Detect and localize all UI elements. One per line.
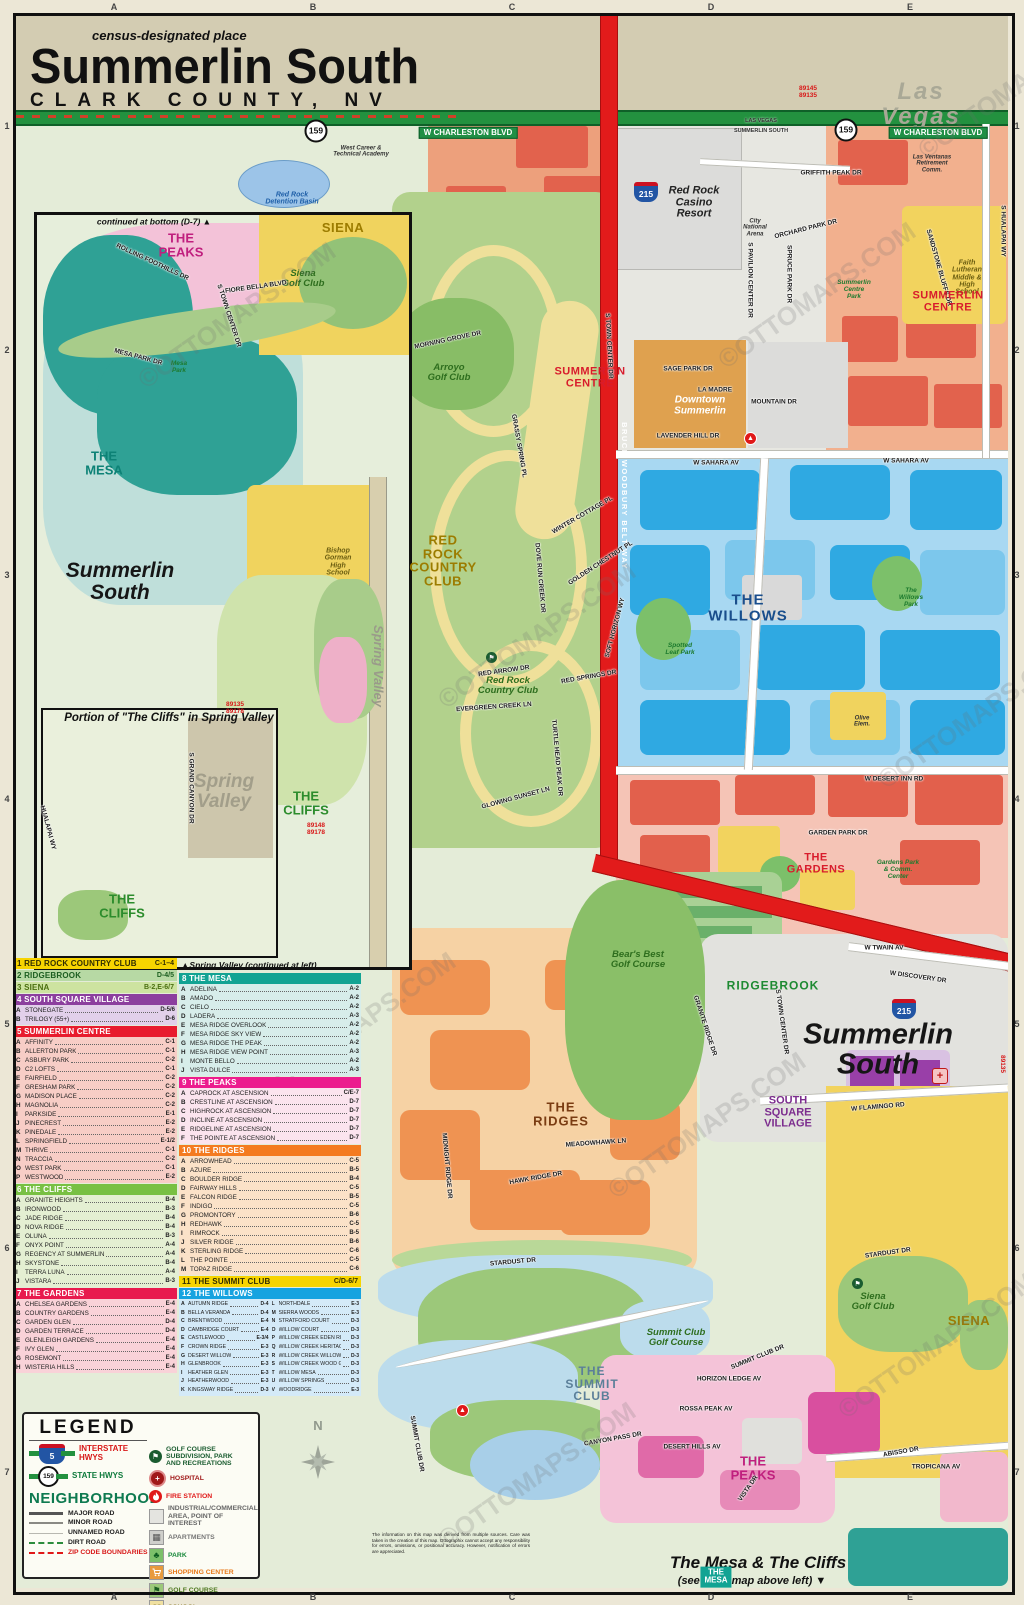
- index-item-mesa-ridge-overlook: EMESA RIDGE OVERLOOKA-2: [181, 1021, 359, 1030]
- index-item-letter: D: [181, 1012, 190, 1021]
- region-pink-blob: [319, 637, 367, 723]
- legend-label: DIRT ROAD: [68, 1539, 106, 1546]
- map-label-w-flamingo-rd: W FLAMINGO RD: [851, 1102, 905, 1113]
- index-item-letter: C: [16, 1318, 25, 1327]
- map-label-the-ridges: THE RIDGES: [533, 1100, 589, 1127]
- index-item-ref: D-7: [349, 1125, 359, 1134]
- road-i215: [600, 16, 618, 862]
- index-item-leader: [343, 1357, 349, 1358]
- index-item-name: JADE RIDGE: [25, 1214, 63, 1223]
- index-item-chelsea-gardens: ACHELSEA GARDENSE-4: [16, 1300, 175, 1309]
- index-item-ref: A-2: [349, 1030, 359, 1039]
- index-item-name: MESA RIDGE THE PEAK: [190, 1039, 262, 1048]
- index-item-leader: [222, 1235, 348, 1236]
- index-item-ref: D-7: [349, 1116, 359, 1125]
- index-item-name: WISTERIA HILLS: [25, 1363, 74, 1372]
- index-item-letter: I: [181, 1229, 190, 1238]
- map-label-continued-at-bottom-d-7: continued at bottom (D-7) ▲: [97, 218, 211, 227]
- grid-row-4: 4: [4, 794, 9, 804]
- index-item-letter: I: [181, 1369, 188, 1378]
- index-item-leader: [232, 1072, 347, 1073]
- index-item-letter: C: [181, 1003, 190, 1012]
- map-label-the-mesa: THE MESA: [700, 1567, 731, 1588]
- index-item-leader: [96, 1342, 164, 1343]
- index-item-topaz-ridge: MTOPAZ RIDGEC-6: [181, 1265, 359, 1274]
- legend-label: APARTMENTS: [168, 1534, 215, 1541]
- index-item-letter: F: [181, 1030, 190, 1039]
- index-item-stonegate: ASTONEGATED-5/6: [16, 1006, 175, 1015]
- index-group-header: 6 THE CLIFFS: [14, 1184, 177, 1195]
- legend-label: INDUSTRIAL/COMMERCIAL AREA, POINT OF INT…: [168, 1505, 250, 1527]
- index-item-ref: D-3: [351, 1360, 359, 1369]
- road-charleston: [16, 110, 1008, 126]
- index-item-name: CRESTLINE AT ASCENSION: [190, 1098, 273, 1107]
- index-item-leader: [233, 1357, 258, 1358]
- map-label-evergreen-creek-ln: EVERGREEN CREEK LN: [456, 702, 532, 714]
- map-label-spring-valley: Spring Valley: [194, 772, 254, 812]
- road-sahara: [616, 450, 1008, 459]
- index-item-letter: A: [181, 1089, 190, 1098]
- index-item-name: MESA RIDGE VIEW POINT: [190, 1048, 268, 1057]
- index-item-ivy-glen: FIVY GLENE-4: [16, 1345, 175, 1354]
- index-item-letter: E: [16, 1074, 25, 1083]
- index-item-stratford-court: NSTRATFORD COURTD-3: [272, 1317, 360, 1326]
- index-item-leader: [332, 1323, 349, 1324]
- index-group-name: 6 THE CLIFFS: [17, 1186, 174, 1194]
- index-item-name: VISTA DULCE: [190, 1066, 230, 1075]
- legend-row-shopping-center: SHOPPING CENTER: [149, 1565, 253, 1580]
- map-label-89135-89178: 89135 89178: [226, 701, 244, 715]
- index-item-name: THE POINTE AT ASCENSION: [190, 1134, 275, 1143]
- legend-box: LEGEND 5INTERSTATE HWYS159STATE HWYSNEIG…: [22, 1412, 260, 1579]
- index-item-northdale: LNORTHDALEE-3: [272, 1300, 360, 1309]
- index-item-woodridge: VWOODRIDGEE-3: [272, 1386, 360, 1395]
- index-item-leader: [224, 1323, 258, 1324]
- index-item-ref: E-3/4: [257, 1334, 269, 1343]
- index-item-leader: [76, 1369, 163, 1370]
- index-item-name: WILLOW CREEK WILLOW FALLS: [279, 1352, 341, 1361]
- index-item-letter: J: [181, 1066, 190, 1075]
- index-item-name: C2 LOFTS: [25, 1065, 55, 1074]
- index-item-letter: I: [181, 1057, 190, 1066]
- industrial-icon: [149, 1509, 164, 1524]
- index-item-leader: [65, 1179, 163, 1180]
- index-item-ref: D-7: [349, 1134, 359, 1143]
- map-label-w-discovery-dr: W DISCOVERY DR: [889, 971, 946, 986]
- map-label-summit-club-golf-course: Summit Club Golf Course: [647, 1328, 706, 1348]
- index-item-castlewood: ECASTLEWOODE-3/4: [181, 1334, 269, 1343]
- legend-label: MINOR ROAD: [68, 1519, 113, 1526]
- map-label-granite-ridge-dr: GRANITE RIDGE DR: [691, 995, 717, 1057]
- map-label-glowing-sunset-ln: GLOWING SUNSET LN: [481, 787, 551, 812]
- index-item-glenbrook: HGLENBROOKE-3: [181, 1360, 269, 1369]
- index-item-letter: C: [16, 1214, 25, 1223]
- index-item-letter: A: [16, 1300, 25, 1309]
- index-group-name: 8 THE MESA: [182, 975, 358, 983]
- index-item-ref: A-2: [349, 1039, 359, 1048]
- index-item-ref: D-7: [349, 1098, 359, 1107]
- index-item-letter: B: [181, 1166, 190, 1175]
- index-item-leader: [86, 1333, 164, 1334]
- index-group-the-cliffs: 6 THE CLIFFSAGRANITE HEIGHTSB-4BIRONWOOD…: [14, 1184, 177, 1287]
- index-item-pinedale: KPINEDALEE-2: [16, 1128, 175, 1137]
- index-group-items: AARROWHEADC-5BAZUREB-5CBOULDER RIDGEB-4D…: [179, 1156, 361, 1275]
- index-item-name: WILLOW CREEK HERITAGE GLEN: [279, 1343, 341, 1352]
- legend-row-golf-course-subdivision-park-and-recreat: ⚑GOLF COURSE SUBDIVISION, PARK AND RECRE…: [149, 1446, 253, 1468]
- index-item-leader: [61, 1265, 163, 1266]
- index-group-the-summit-club: 11 THE SUMMIT CLUBC/D-6/7: [179, 1276, 361, 1287]
- map-label-the-willows-park: The Willows Park: [899, 588, 923, 608]
- index-item-ref: D-4: [165, 1327, 175, 1336]
- region-spring-valley-road: [369, 477, 387, 967]
- index-item-ref: E-3: [261, 1377, 269, 1386]
- golfer-icon: ⚑: [149, 1583, 164, 1598]
- index-group-name: 5 SUMMERLIN CENTRE: [17, 1028, 174, 1036]
- index-item-leader: [77, 1089, 163, 1090]
- compass-rose: N: [288, 1418, 348, 1492]
- map-label-arroyo-golf-club: Arroyo Golf Club: [428, 363, 471, 383]
- index-item-letter: F: [181, 1202, 190, 1211]
- index-item-letter: I: [16, 1110, 25, 1119]
- index-item-madison-place: GMADISON PLACEC-2: [16, 1092, 175, 1101]
- index-item-leader: [264, 1045, 347, 1046]
- index-item-ref: E-3: [261, 1369, 269, 1378]
- index-item-wisteria-hills: HWISTERIA HILLSE-4: [16, 1363, 175, 1372]
- index-item-leader: [271, 1095, 342, 1096]
- index-item-name: WILLOW SPRINGS: [279, 1377, 325, 1386]
- index-item-letter: L: [16, 1137, 25, 1146]
- index-item-ladera: DLADERAA-3: [181, 1012, 359, 1021]
- index-item-monte-bello: IMONTE BELLOA-2: [181, 1057, 359, 1066]
- index-item-nova-ridge: DNOVA RIDGEB-4: [16, 1223, 175, 1232]
- index-item-ref: D-3: [351, 1326, 359, 1335]
- index-item-ref: E-4: [261, 1317, 269, 1326]
- index-item-leader: [230, 1306, 258, 1307]
- grid-col-C: C: [509, 1592, 516, 1602]
- map-page: + ▲ ▲ ⚑ ⚑ Las VegasLAS VEGASSU: [0, 0, 1024, 1605]
- index-item-ref: C-2: [165, 1056, 175, 1065]
- index-item-ref: B-4: [165, 1214, 175, 1223]
- index-group-header: 1 RED ROCK COUNTRY CLUBC-1–4: [14, 958, 177, 969]
- index-item-ref: E-4: [166, 1354, 175, 1363]
- index-item-letter: E: [181, 1125, 190, 1134]
- index-item-leader: [63, 1211, 163, 1212]
- map-label-siena: SIENA: [322, 221, 364, 235]
- index-item-letter: H: [181, 1048, 190, 1057]
- index-item-name: LADERA: [190, 1012, 215, 1021]
- legend-right-column: ⚑GOLF COURSE SUBDIVISION, PARK AND RECRE…: [149, 1441, 253, 1605]
- zip-road-swatch: [29, 1552, 63, 1554]
- index-item-leader: [56, 1351, 164, 1352]
- index-item-ref: D-4: [260, 1300, 268, 1309]
- index-item-leader: [231, 1383, 259, 1384]
- index-item-name: WILLOW COURT: [279, 1326, 320, 1335]
- grid-row-2: 2: [1014, 345, 1019, 355]
- map-label-tropicana-av: TROPICANA AV: [912, 1465, 961, 1472]
- legend-row-major-road: MAJOR ROAD: [29, 1510, 149, 1517]
- legend-row-golf-course: ⚑GOLF COURSE: [149, 1583, 253, 1598]
- disclaimer-text: The information on this map was derived …: [372, 1532, 530, 1555]
- map-label-the-willows: THE WILLOWS: [708, 592, 787, 624]
- map-label-w-sahara-av: W SAHARA AV: [693, 461, 739, 468]
- index-item-vistara: JVISTARAB-3: [16, 1277, 175, 1286]
- index-item-letter: D: [181, 1184, 190, 1193]
- index-item-leader: [239, 1190, 348, 1191]
- index-group-name: 7 THE GARDENS: [17, 1290, 174, 1298]
- index-item-ref: C/E-7: [344, 1089, 359, 1098]
- index-item-letter: B: [16, 1015, 25, 1024]
- index-item-mesa-ridge-the-peak: GMESA RIDGE THE PEAKA-2: [181, 1039, 359, 1048]
- grid-row-1: 1: [4, 121, 9, 131]
- index-item-name: MONTE BELLO: [190, 1057, 235, 1066]
- map-label-red-rock-country-club: RED ROCK COUNTRY CLUB: [409, 534, 476, 589]
- index-item-name: WOODRIDGE: [279, 1386, 312, 1395]
- index-group-ref: C-1–4: [155, 960, 174, 967]
- index-item-letter: L: [272, 1300, 279, 1309]
- index-item-willow-mesa: TWILLOW MESAD-3: [272, 1369, 360, 1378]
- legend-label: MAJOR ROAD: [68, 1510, 114, 1517]
- index-item-leader: [321, 1331, 349, 1332]
- map-label-garden-park-dr: GARDEN PARK DR: [808, 831, 867, 838]
- index-item-leader: [63, 1360, 163, 1361]
- index-item-name: GARDEN TERRACE: [25, 1327, 84, 1336]
- index-item-name: ASBURY PARK: [25, 1056, 69, 1065]
- index-item-name: GLENBROOK: [188, 1360, 221, 1369]
- index-item-name: TRILOGY (55+): [25, 1015, 69, 1024]
- index-item-arrowhead: AARROWHEADC-5: [181, 1157, 359, 1166]
- index-item-letter: U: [272, 1377, 279, 1386]
- index-item-name: WILLOW MESA: [279, 1369, 316, 1378]
- index-item-leader: [237, 1063, 348, 1064]
- index-item-leader: [50, 1152, 163, 1153]
- index-group-the-peaks: 9 THE PEAKSACAPROCK AT ASCENSIONC/E-7BCR…: [179, 1077, 361, 1144]
- map-label-siena-golf-club: Siena Golf Club: [852, 1292, 895, 1312]
- index-item-promontory: GPROMONTORYB-6: [181, 1211, 359, 1220]
- index-item-leader: [53, 1283, 163, 1284]
- index-item-skystone: HSKYSTONEB-4: [16, 1259, 175, 1268]
- index-item-ref: E-3: [351, 1386, 359, 1395]
- index-item-leader: [63, 1125, 164, 1126]
- index-item-name: ARROWHEAD: [190, 1157, 232, 1166]
- grid-row-7: 7: [1014, 1467, 1019, 1477]
- index-item-cielo: CCIELOA-2: [181, 1003, 359, 1012]
- index-item-ref: E-1/2: [161, 1137, 175, 1146]
- index-item-adelina: AADELINAA-2: [181, 985, 359, 994]
- index-item-name: ALLERTON PARK: [25, 1047, 76, 1056]
- index-item-ref: C-1: [165, 1164, 175, 1173]
- index-item-letter: O: [272, 1326, 279, 1335]
- index-item-springfield: LSPRINGFIELDE-1/2: [16, 1137, 175, 1146]
- index-item-leader: [273, 1113, 347, 1114]
- compass-north-label: N: [313, 1418, 322, 1433]
- index-item-name: REDHAWK: [190, 1220, 222, 1229]
- index-item-leader: [78, 1053, 163, 1054]
- index-item-willow-creek-wood-glen: SWILLOW CREEK WOOD GLEND-3: [272, 1360, 360, 1369]
- index-item-leader: [71, 1021, 163, 1022]
- grid-col-B: B: [310, 1592, 317, 1602]
- legend-row-zip-code-boundaries: ZIP CODE BOUNDARIES: [29, 1549, 149, 1556]
- map-label-summit-club-dr: SUMMIT CLUB DR: [408, 1415, 425, 1472]
- index-item-name: WESTWOOD: [25, 1173, 63, 1182]
- index-item-name: IRONWOOD: [25, 1205, 61, 1214]
- map-label-summerlin-south: Summerlin South: [66, 560, 175, 604]
- fire-icon: [149, 1490, 162, 1503]
- index-item-ref: C-5: [349, 1202, 359, 1211]
- index-item-granite-heights: AGRANITE HEIGHTSB-4: [16, 1196, 175, 1205]
- index-item-ref: E-4: [166, 1363, 175, 1372]
- index-item-ref: D-4: [165, 1318, 175, 1327]
- index-item-leader: [228, 1349, 259, 1350]
- index-item-leader: [65, 1012, 158, 1013]
- index-item-rimrock: IRIMROCKB-5: [181, 1229, 359, 1238]
- index-item-name: TERRA LUNA: [25, 1268, 65, 1277]
- index-item-name: TOPAZ RIDGE: [190, 1265, 232, 1274]
- index-item-name: MESA RIDGE OVERLOOK: [190, 1021, 266, 1030]
- index-item-willow-springs: UWILLOW SPRINGSD-3: [272, 1377, 360, 1386]
- grid-col-B: B: [310, 2, 317, 12]
- index-item-leader: [241, 1331, 259, 1332]
- index-group-name: 11 THE SUMMIT CLUB: [182, 1278, 334, 1286]
- index-item-name: STONEGATE: [25, 1006, 63, 1015]
- index-item-ref: A-2: [349, 1003, 359, 1012]
- index-item-letter: H: [16, 1363, 25, 1372]
- map-label-89148-89178: 89148 89178: [307, 822, 325, 836]
- legend-row-school: SCHOOL: [149, 1600, 253, 1605]
- index-item-name: THE POINTE: [190, 1256, 228, 1265]
- index-item-name: SILVER RIDGE: [190, 1238, 234, 1247]
- index-group-header: 3 SIENAB-2,E-6/7: [14, 982, 177, 993]
- index-item-leader: [59, 1080, 163, 1081]
- index-item-leader: [230, 1262, 348, 1263]
- index-item-leader: [49, 1238, 164, 1239]
- index-item-ref: C-1: [165, 1065, 175, 1074]
- grid-col-D: D: [708, 1592, 715, 1602]
- map-label-desert-hills-av: DESERT HILLS AV: [663, 1445, 720, 1452]
- index-item-cambridge-court: DCAMBRIDGE COURTE-4: [181, 1326, 269, 1335]
- grid-row-6: 6: [4, 1243, 9, 1253]
- map-label-s-town-center-dr: S TOWN CENTER DR: [773, 989, 789, 1055]
- index-item-caprock-at-ascension: ACAPROCK AT ASCENSIONC/E-7: [181, 1089, 359, 1098]
- index-item-c2-lofts: DC2 LOFTSC-1: [16, 1065, 175, 1074]
- hospital-icon: +: [149, 1470, 166, 1487]
- legend-row-dirt-road: DIRT ROAD: [29, 1539, 149, 1546]
- map-label-gardens-park-comm-center: Gardens Park & Comm. Center: [877, 860, 919, 880]
- index-item-letter: E: [181, 1021, 190, 1030]
- index-item-amado: BAMADOA-2: [181, 994, 359, 1003]
- index-item-leader: [213, 1172, 347, 1173]
- index-item-leader: [312, 1306, 349, 1307]
- index-item-name: IVY GLEN: [25, 1345, 54, 1354]
- index-item-letter: M: [272, 1309, 279, 1318]
- index-item-ref: E-3: [261, 1343, 269, 1352]
- index-item-letter: N: [272, 1317, 279, 1326]
- map-label-the-summit-club: THE SUMMIT CLUB: [565, 1365, 618, 1403]
- map-label-s-grand-canyon-dr: S GRAND CANYON DR: [187, 752, 194, 823]
- index-item-name: DESERT WILLOW: [188, 1352, 231, 1361]
- index-item-ref: A-4: [165, 1268, 175, 1277]
- map-label-bishop-gorman-high-school: Bishop Gorman High School: [325, 547, 352, 576]
- legend-row-minor-road: MINOR ROAD: [29, 1519, 149, 1526]
- index-item-name: ONYX POINT: [25, 1241, 64, 1250]
- index-item-name: RIMROCK: [190, 1229, 220, 1238]
- state-shield-icon: 159: [29, 1466, 68, 1487]
- index-item-letter: G: [16, 1354, 25, 1363]
- fire-station-icon: ▲: [744, 432, 757, 445]
- index-item-jade-ridge: CJADE RIDGEB-4: [16, 1214, 175, 1223]
- index-item-brentwood: CBRENTWOODE-4: [181, 1317, 269, 1326]
- index-item-leader: [236, 1244, 348, 1245]
- index-item-name: GRESHAM PARK: [25, 1083, 75, 1092]
- index-item-leader: [211, 1009, 347, 1010]
- index-item-crestline-at-ascension: BCRESTLINE AT ASCENSIOND-7: [181, 1098, 359, 1107]
- legend-neighborhood-title: NEIGHBORHOOD: [29, 1490, 149, 1507]
- index-item-rosemont: GROSEMONTE-4: [16, 1354, 175, 1363]
- index-item-name: AFFINITY: [25, 1038, 53, 1047]
- index-item-ref: E-3: [261, 1360, 269, 1369]
- index-group-siena: 3 SIENAB-2,E-6/7: [14, 982, 177, 993]
- index-item-affinity: AAFFINITYC-1: [16, 1038, 175, 1047]
- index-item-country-gardens: BCOUNTRY GARDENSE-4: [16, 1309, 175, 1318]
- index-group-the-ridges: 10 THE RIDGESAARROWHEADC-5BAZUREB-5CBOUL…: [179, 1145, 361, 1275]
- index-item-ref: A-2: [349, 1021, 359, 1030]
- index-item-letter: P: [272, 1334, 279, 1343]
- index-item-ref: A-2: [349, 1057, 359, 1066]
- index-group-the-mesa: 8 THE MESAAADELINAA-2BAMADOA-2CCIELOA-2D…: [179, 973, 361, 1076]
- index-item-kingsway-ridge: KKINGSWAY RIDGED-3: [181, 1386, 269, 1395]
- legend-label: PARK: [168, 1552, 187, 1559]
- legend-label: ZIP CODE BOUNDARIES: [68, 1549, 148, 1556]
- map-label-hawk-ridge-dr: HAWK RIDGE DR: [509, 1171, 563, 1187]
- index-item-name: CAMBRIDGE COURT: [188, 1326, 239, 1335]
- index-item-west-park: OWEST PARKC-1: [16, 1164, 175, 1173]
- map-label-s-pavilion-center-dr: S PAVILION CENTER DR: [746, 242, 753, 318]
- grid-col-E: E: [907, 1592, 913, 1602]
- index-item-oluna: EOLUNAB-3: [16, 1232, 175, 1241]
- index-group-the-willows: 12 THE WILLOWSAAUTUMN RIDGED-4BBELLA VER…: [179, 1288, 361, 1396]
- map-label-the-cliffs: THE CLIFFS: [283, 789, 329, 816]
- index-item-ref: C-1: [165, 1047, 175, 1056]
- index-item-ref: C-5: [349, 1157, 359, 1166]
- index-item-ref: B-4: [165, 1223, 175, 1232]
- index-item-ref: A-2: [349, 985, 359, 994]
- index-item-name: PROMONTORY: [190, 1211, 236, 1220]
- grid-row-6: 6: [1014, 1243, 1019, 1253]
- index-item-ref: D-3: [351, 1334, 359, 1343]
- index-item-fairfield: EFAIRFIELDC-2: [16, 1074, 175, 1083]
- legend-label: INTERSTATE HWYS: [79, 1445, 149, 1463]
- index-item-ref: C-2: [165, 1101, 175, 1110]
- index-item-the-pointe-at-ascension: FTHE POINTE AT ASCENSIOND-7: [181, 1134, 359, 1143]
- index-item-name: PARKSIDE: [25, 1110, 56, 1119]
- map-label-red-rock-detention-basin: Red Rock Detention Basin: [265, 192, 318, 207]
- index-group-south-square-village: 4 SOUTH SQUARE VILLAGEASTONEGATED-5/6BTR…: [14, 994, 177, 1025]
- map-label-city-national-arena: City National Arena: [743, 219, 767, 238]
- index-item-silver-ridge: JSILVER RIDGEB-6: [181, 1238, 359, 1247]
- index-item-name: CROWN RIDGE: [188, 1343, 226, 1352]
- grid-row-5: 5: [1014, 1019, 1019, 1029]
- park-icon: ♣: [149, 1548, 164, 1563]
- index-group-ref: D-4/5: [157, 972, 174, 979]
- index-item-ref: C-5: [349, 1184, 359, 1193]
- index-item-leader: [55, 1161, 164, 1162]
- index-item-ref: E-4: [261, 1326, 269, 1335]
- index-item-willow-creek-willow-falls: RWILLOW CREEK WILLOW FALLSD-3: [272, 1352, 360, 1361]
- index-item-willow-creek-heritage-glen: QWILLOW CREEK HERITAGE GLEND-3: [272, 1343, 360, 1352]
- index-item-letter: E: [16, 1232, 25, 1241]
- index-group-name: 1 RED ROCK COUNTRY CLUB: [17, 960, 155, 968]
- golf-flag-icon: ⚑: [149, 1450, 162, 1463]
- index-item-name: STRATFORD COURT: [279, 1317, 330, 1326]
